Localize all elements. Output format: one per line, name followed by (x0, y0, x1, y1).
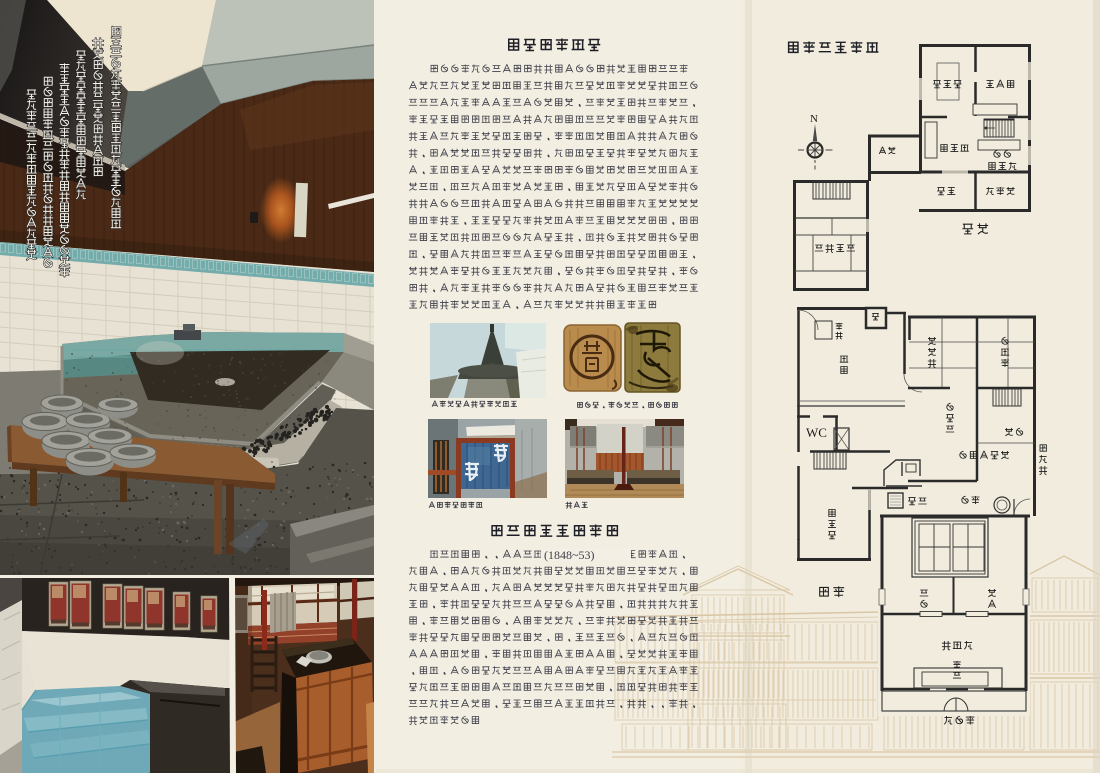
svg-text:N: N (810, 113, 818, 125)
svg-text:(1848~53): (1848~53) (544, 548, 594, 562)
svg-text:WC: WC (806, 425, 827, 440)
